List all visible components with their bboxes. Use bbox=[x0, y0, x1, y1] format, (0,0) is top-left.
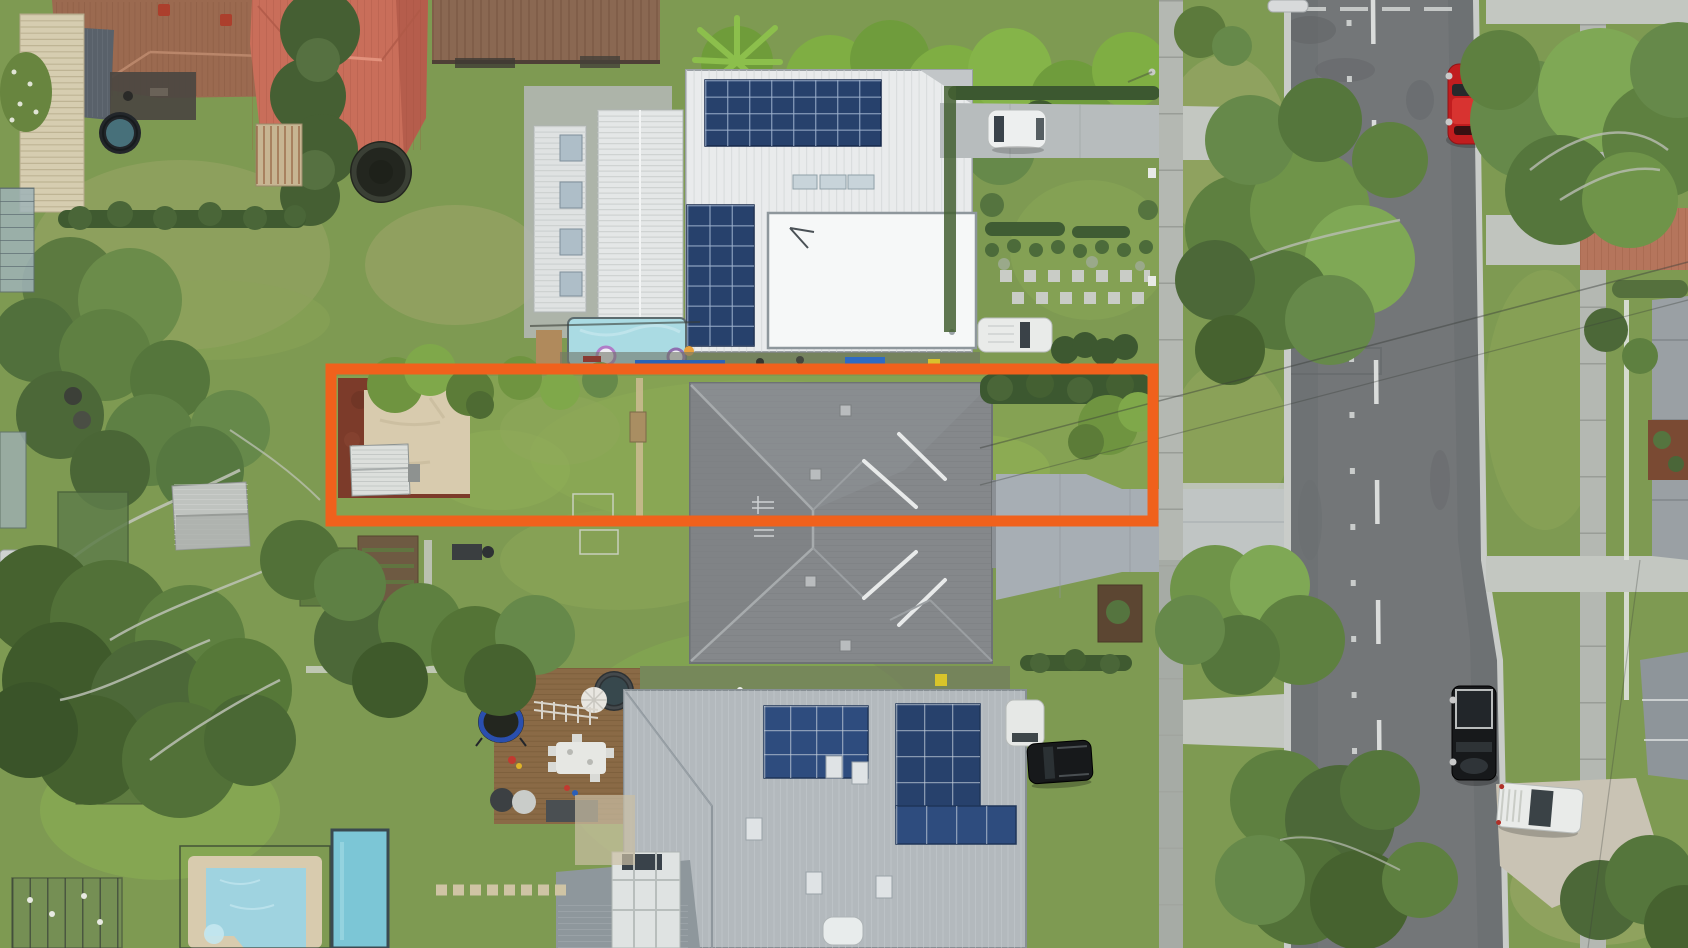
skylight bbox=[793, 175, 817, 189]
skylight bbox=[820, 175, 846, 189]
skylight bbox=[848, 175, 874, 189]
skylight bbox=[806, 872, 822, 894]
planter-box bbox=[630, 412, 646, 442]
back-fence bbox=[636, 378, 643, 520]
sandy-patch bbox=[575, 795, 635, 865]
white-ute bbox=[1495, 782, 1584, 840]
sidewalk-left bbox=[1159, 0, 1183, 948]
white-hatchback bbox=[1006, 700, 1044, 746]
lap-pool-lower bbox=[332, 830, 388, 948]
striped-roof-wings bbox=[534, 110, 683, 323]
solar-array-left bbox=[687, 205, 754, 346]
black-ute bbox=[1450, 686, 1499, 786]
compost-bin bbox=[73, 411, 91, 429]
aerial-photo bbox=[0, 0, 1688, 948]
compost-bin bbox=[64, 387, 82, 405]
bbq-mid bbox=[452, 544, 482, 560]
timber-steps bbox=[536, 330, 562, 366]
garden-bed-right bbox=[1648, 420, 1688, 480]
driveway-mid-right bbox=[1486, 556, 1688, 592]
silver-car-partial bbox=[1268, 0, 1308, 12]
rusty-shed bbox=[256, 124, 302, 186]
skylight bbox=[852, 762, 868, 784]
hot-water-unit bbox=[823, 917, 863, 945]
skylight bbox=[876, 876, 892, 898]
spa-tub bbox=[99, 112, 141, 154]
skylight bbox=[826, 756, 842, 778]
lower-crossover bbox=[1183, 694, 1285, 748]
white-suv bbox=[988, 110, 1046, 154]
white-van bbox=[978, 318, 1052, 352]
solar-array-top bbox=[705, 80, 881, 146]
swimming-pool bbox=[180, 846, 330, 948]
greenhouse bbox=[0, 188, 34, 292]
trampoline-black-top bbox=[350, 141, 412, 203]
garden-cage bbox=[12, 878, 122, 948]
black-suv bbox=[1027, 740, 1094, 790]
right-roof-b bbox=[1640, 652, 1688, 780]
path-top-right bbox=[1486, 0, 1688, 24]
brick-house bbox=[432, 0, 660, 68]
small-shed bbox=[172, 482, 250, 550]
skylight bbox=[746, 818, 762, 840]
gap-strip bbox=[640, 666, 1010, 692]
glass-structure bbox=[0, 432, 26, 528]
flower-bed bbox=[0, 52, 52, 132]
